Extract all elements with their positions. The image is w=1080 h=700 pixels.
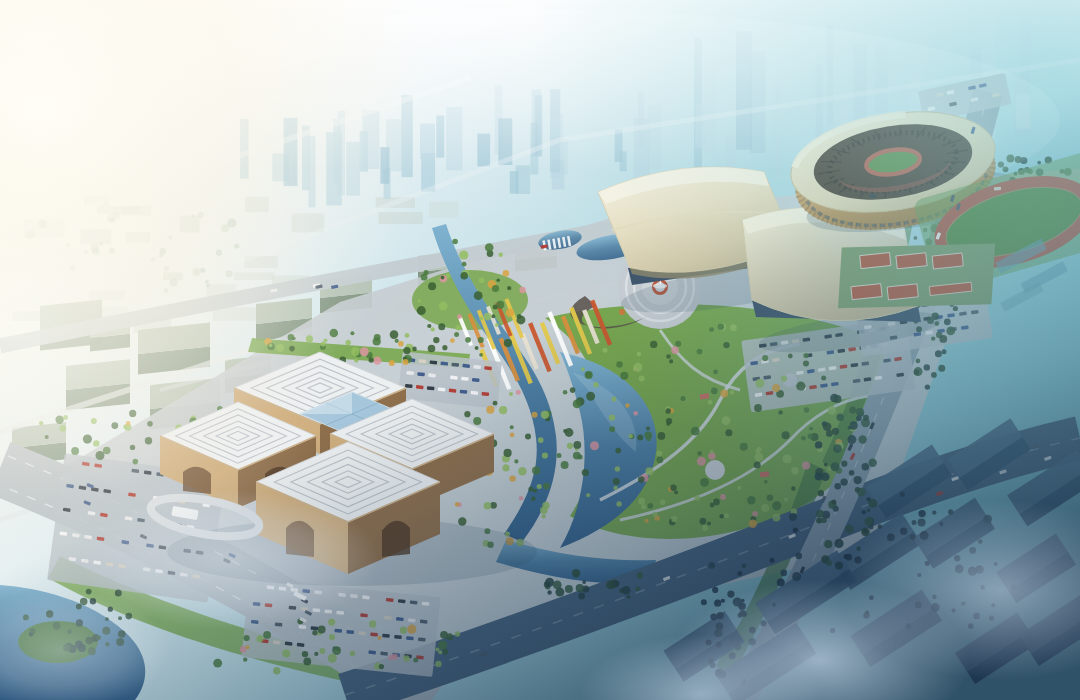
rendering-canvas: Aerial architectural rendering of a civi… [0, 0, 1080, 700]
aerial-rendering: Aerial architectural rendering of a civi… [0, 0, 1080, 700]
